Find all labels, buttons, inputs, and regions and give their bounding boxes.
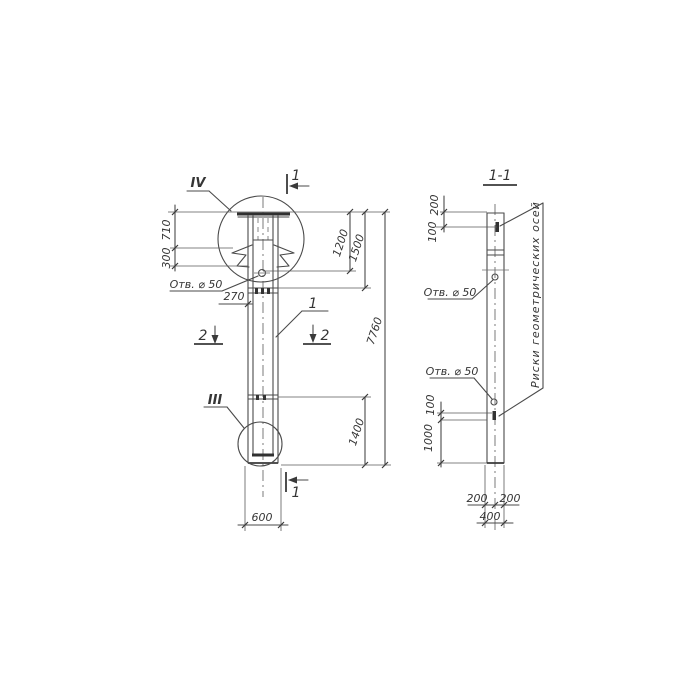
dim-7760-text: 7760 [364,316,385,347]
section-marker-2-left: 2 [194,326,223,344]
dim-200-bottom-right-text: 200 [500,492,521,505]
axes-note-text: Риски геометрических осей [529,201,542,388]
technical-drawing-page: IV III 1 1 1 2 2 [0,0,700,700]
detail-label-iv: IV [187,176,231,211]
detail-label-iii: III [204,393,244,428]
section-marker-1-bottom: 1 [286,472,308,501]
left-view-hole [254,270,270,277]
dim-400-text: 400 [480,510,501,523]
section-2-left-text: 2 [199,328,208,344]
dim-group-200-200-400: 200 200 400 [467,465,521,528]
section-1-bottom-text: 1 [292,485,301,501]
left-view-column-outline [237,214,290,463]
dim-200-top-text: 200 [428,195,441,216]
dim-100-bottom-text: 100 [424,395,437,416]
part-callout-text: 1 [309,296,318,312]
dim-group-100-1000: 100 1000 [422,395,492,468]
dim-1400-text: 1400 [346,417,367,448]
detail-iv-text: IV [191,176,207,191]
dim-group-1400: 1400 [278,394,371,468]
dim-710-text: 710 [160,220,173,241]
hole-label-left-text: Отв. ⌀ 50 [170,278,223,291]
dim-group-1200-1500: 1200 1500 [263,209,371,291]
section-1-1-title-text: 1-1 [489,168,512,184]
axes-note: Риски геометрических осей [499,201,543,416]
section-2-right-text: 2 [321,328,330,344]
right-view-column-outline [482,204,509,530]
pile-column-drawing: IV III 1 1 1 2 2 [0,0,700,700]
section-marker-2-right: 2 [303,325,331,344]
dim-200-bottom-left-text: 200 [467,492,488,505]
hole-label-right-lower-text: Отв. ⌀ 50 [426,365,479,378]
dim-100-top-text: 100 [426,222,439,243]
dim-300-text: 300 [160,248,173,269]
hole-label-right-upper-text: Отв. ⌀ 50 [424,286,477,299]
detail-iii-text: III [208,393,223,408]
detail-circle-iii [238,422,282,466]
section-1-top-text: 1 [292,168,301,184]
section-marker-1-top: 1 [287,168,309,194]
section-1-1-title: 1-1 [483,168,517,185]
dim-600-text: 600 [252,511,273,524]
hole-label-right-upper: Отв. ⌀ 50 [424,280,493,299]
hole-label-right-lower: Отв. ⌀ 50 [426,365,492,399]
dim-1000-text: 1000 [422,424,435,452]
dim-group-270: 270 [219,290,252,307]
dim-270-text: 270 [224,290,245,303]
dim-group-200-100-top: 200 100 [426,195,497,243]
